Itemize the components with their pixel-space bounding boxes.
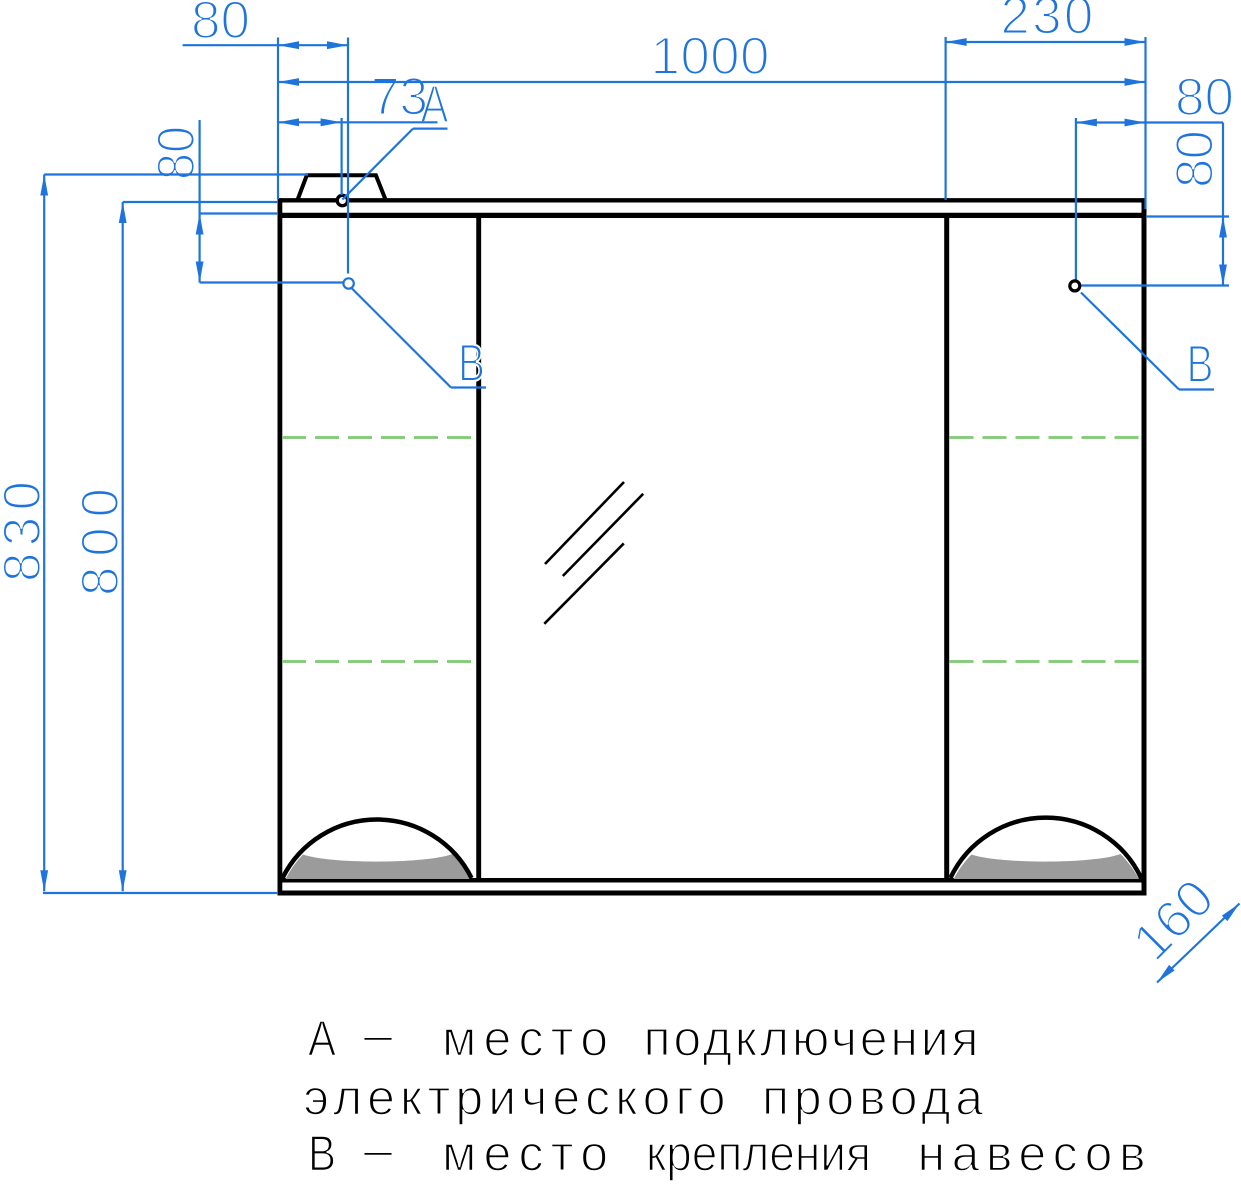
svg-text:крепления: крепления — [646, 1126, 871, 1182]
svg-text:место: место — [442, 1126, 608, 1182]
svg-text:B: B — [1187, 335, 1214, 394]
svg-text:место: место — [442, 1011, 608, 1067]
svg-text:электрического: электрического — [304, 1070, 726, 1126]
svg-text:80: 80 — [191, 0, 250, 50]
svg-text:80: 80 — [147, 126, 206, 180]
svg-text:830: 830 — [0, 481, 52, 582]
svg-text:B: B — [458, 334, 485, 393]
svg-text:подключения: подключения — [644, 1011, 979, 1067]
svg-text:73: 73 — [371, 68, 428, 127]
svg-text:80: 80 — [1166, 130, 1225, 188]
svg-text:—: — — [364, 1007, 392, 1063]
svg-text:навесов: навесов — [918, 1126, 1146, 1182]
svg-text:800: 800 — [71, 488, 130, 596]
svg-text:A: A — [421, 75, 450, 134]
svg-text:1000: 1000 — [651, 27, 770, 86]
svg-text:230: 230 — [1000, 0, 1093, 46]
svg-text:80: 80 — [1175, 68, 1234, 127]
svg-text:—: — — [364, 1122, 392, 1178]
svg-text:В: В — [308, 1126, 336, 1182]
svg-text:провода: провода — [762, 1070, 983, 1126]
svg-text:А: А — [308, 1011, 337, 1067]
